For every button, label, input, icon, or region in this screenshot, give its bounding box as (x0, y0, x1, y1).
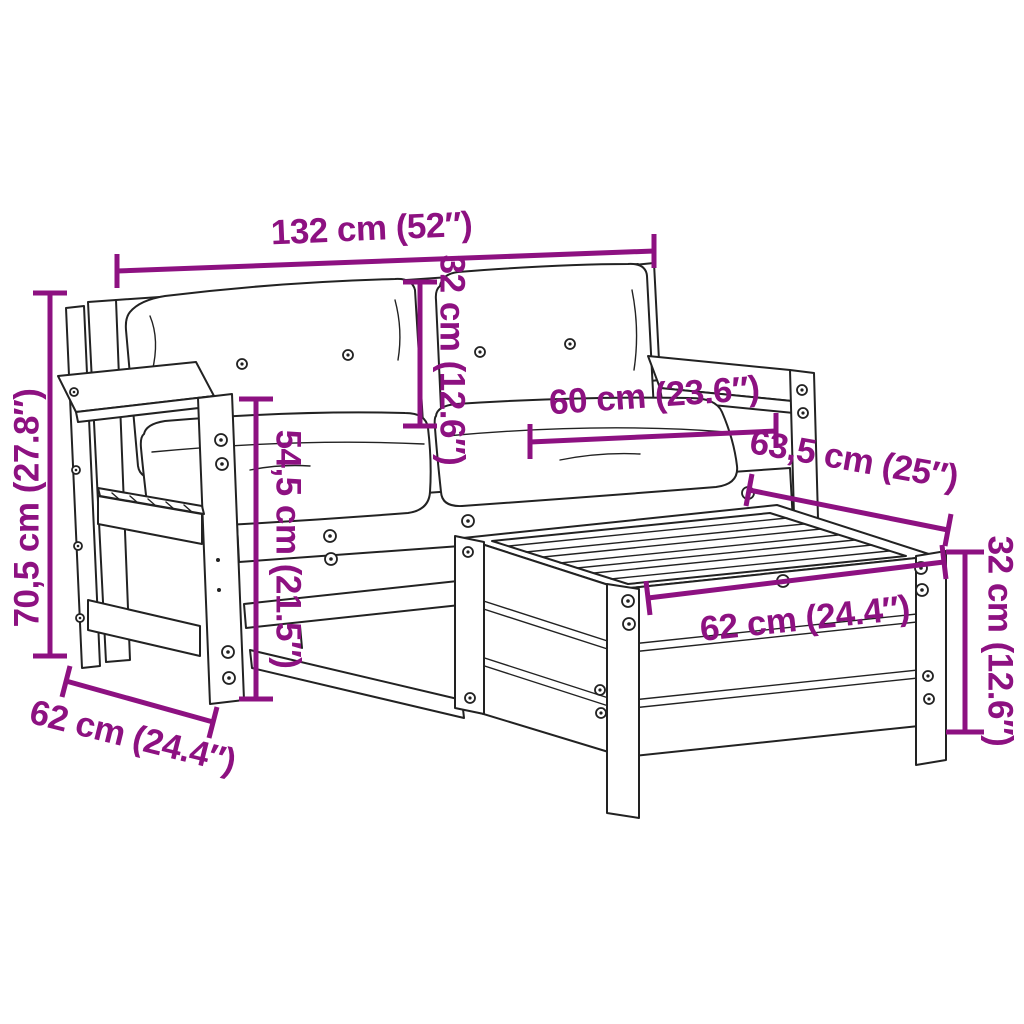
dimension-table-height: 32 cm (12.6″) (946, 536, 1020, 747)
dimension-label: 32 cm (12.6″) (433, 255, 472, 466)
dimension-label: 70,5 cm (27.8″) (8, 389, 47, 628)
dimension-label: 132 cm (52″) (270, 205, 473, 253)
dimension-label: 54,5 cm (21.5″) (269, 430, 308, 669)
dimension-label: 32 cm (12.6″) (981, 536, 1020, 747)
dimension-total-height: 70,5 cm (27.8″) (8, 293, 68, 656)
dimension-sofa-depth: 62 cm (24.4″) (26, 666, 240, 781)
dimension-label: 62 cm (24.4″) (26, 692, 240, 781)
ottoman-line-art (455, 505, 946, 818)
product-dimension-diagram: 132 cm (52″) 32 cm (12.6″) 60 cm (23.6″)… (0, 0, 1024, 1024)
diagram-canvas: 132 cm (52″) 32 cm (12.6″) 60 cm (23.6″)… (0, 0, 1024, 1024)
